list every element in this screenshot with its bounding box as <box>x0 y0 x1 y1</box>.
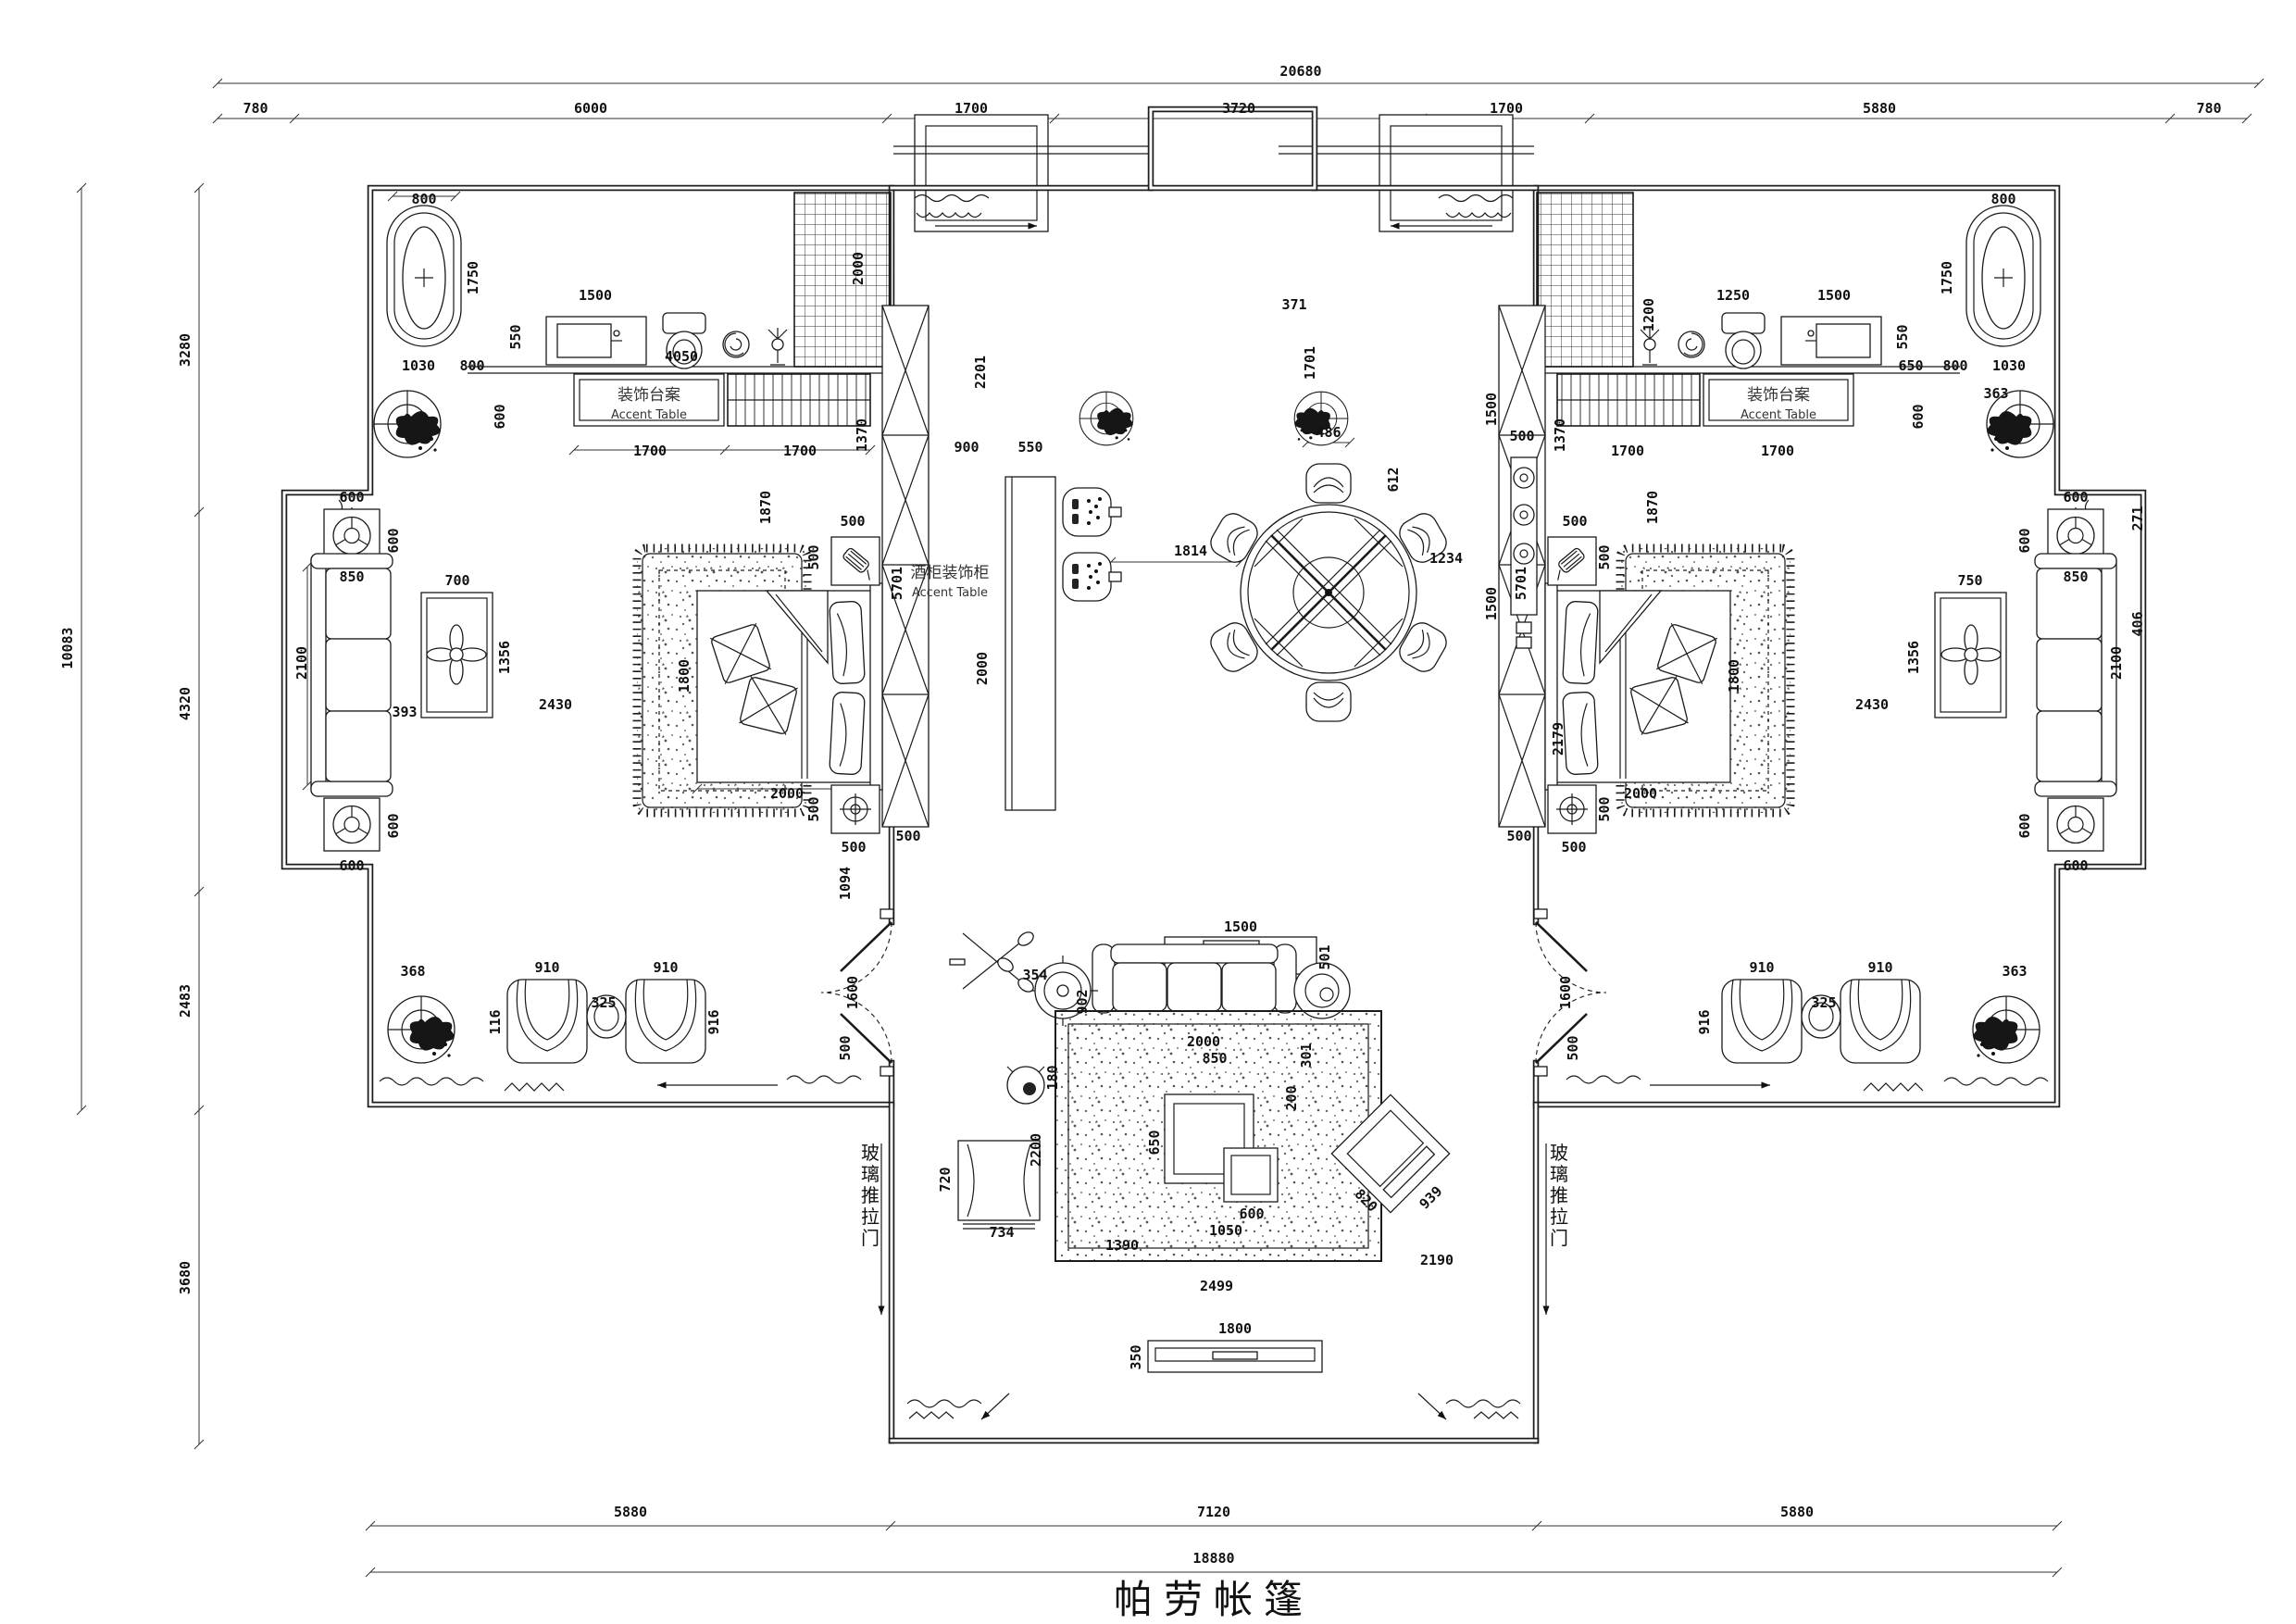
dimension-label: 1050 <box>1209 1222 1242 1239</box>
window-curtain <box>380 1076 861 1091</box>
nightstand <box>831 537 880 585</box>
dimension-label: 5880 <box>1780 1504 1814 1520</box>
dimension-label: 1800 <box>1218 1320 1252 1337</box>
room-label: Accent Table <box>611 408 687 422</box>
slatted-bench <box>728 374 870 426</box>
dimension-label: 4050 <box>665 348 698 365</box>
dimension-label: 2000 <box>850 252 867 285</box>
vanity-sink <box>546 317 646 365</box>
dimension-label: 1030 <box>1992 357 2026 374</box>
dimension-label: 550 <box>1017 439 1042 456</box>
dimension-label: 2190 <box>1420 1252 1454 1268</box>
terrace-curtain <box>907 1393 1009 1419</box>
dimension-label: 20680 <box>1279 63 1321 80</box>
dimension-label: 500 <box>837 1035 854 1060</box>
dimension-label: 325 <box>1811 994 1836 1011</box>
dimension-label: 2000 <box>1187 1033 1220 1050</box>
dimension-label: 116 <box>487 1009 504 1034</box>
dimension-label: 486 <box>1316 424 1341 441</box>
dimension-label: 1500 <box>1817 287 1851 304</box>
dimension-label: 550 <box>1894 324 1911 349</box>
dimension-label: 600 <box>2063 489 2088 506</box>
dimension-label: 780 <box>243 100 268 117</box>
dimension-label: 600 <box>339 489 364 506</box>
dimension-label: 600 <box>339 857 364 874</box>
drawing-title: 帕劳帐篷 <box>1114 1577 1314 1622</box>
dimension-label: 2430 <box>539 696 572 713</box>
dimension-label: 500 <box>1565 1035 1581 1060</box>
dimension-label: 1500 <box>1483 587 1500 620</box>
dimension-label: 1750 <box>465 261 481 294</box>
dimension-label: 600 <box>492 404 508 429</box>
dimension-label: 600 <box>385 528 402 553</box>
dimension-label: 910 <box>653 959 678 976</box>
room-label: 玻璃推拉门 <box>861 1142 880 1249</box>
table-lamp <box>768 328 787 365</box>
dimension-label: 650 <box>1146 1130 1163 1155</box>
dimension-label: 916 <box>1696 1009 1713 1034</box>
dimension-label: 1701 <box>1302 346 1318 380</box>
dimension-label: 406 <box>2129 611 2146 636</box>
dimension-label: 180 <box>1044 1065 1061 1090</box>
bar-counter <box>1005 477 1055 810</box>
dimension-label: 500 <box>1596 796 1613 821</box>
dimension-label: 2100 <box>2108 646 2125 680</box>
dimension-label: 902 <box>1074 989 1091 1014</box>
dimension-label: 10083 <box>59 627 76 668</box>
room-label: 玻璃推拉门 <box>1550 1142 1568 1249</box>
dimension-label: 5701 <box>889 567 905 600</box>
dimension-label: 200 <box>1283 1085 1300 1110</box>
dimension-label: 2179 <box>1550 722 1566 756</box>
dimension-label: 500 <box>1561 839 1586 856</box>
dimension-label: 1200 <box>1641 298 1657 331</box>
dimension-label: 1370 <box>1552 418 1568 452</box>
dimension-label: 1700 <box>1761 443 1794 459</box>
bay-sofa <box>311 554 393 796</box>
dimension-label: 325 <box>591 994 616 1011</box>
dimension-label: 1800 <box>1726 659 1742 693</box>
dimension-label: 600 <box>1239 1206 1264 1222</box>
dimension-label: 1600 <box>844 976 861 1009</box>
dimension-label: 4320 <box>177 687 193 720</box>
dimension-label: 5880 <box>614 1504 647 1520</box>
dimension-label: 500 <box>1596 544 1613 569</box>
dimension-label: 1700 <box>633 443 667 459</box>
room-label: 装饰台案 <box>1747 386 1810 405</box>
dimension-label: 2430 <box>1855 696 1889 713</box>
dimension-label: 850 <box>1202 1050 1227 1067</box>
living-sofa <box>1092 944 1296 1013</box>
dimension-label: 650 <box>1898 357 1923 374</box>
dimension-label: 2000 <box>770 785 804 802</box>
dimension-label: 5701 <box>1513 567 1529 600</box>
dimension-label: 939 <box>1416 1183 1446 1213</box>
dimension-label: 700 <box>444 572 469 589</box>
dimension-label: 1700 <box>1611 443 1644 459</box>
arc-lamp <box>950 930 1036 994</box>
dimension-label: 1500 <box>579 287 612 304</box>
dimension-label: 1356 <box>496 641 513 674</box>
right-suite-mirror <box>1279 115 2143 1441</box>
nightstand <box>831 785 880 833</box>
annotation-text-layer: 帕劳帐篷 20680780600017003720170058807801008… <box>59 63 2222 1622</box>
room-label: 装饰台案 <box>618 386 680 405</box>
dimension-label: 1356 <box>1905 641 1922 674</box>
dimension-label: 1500 <box>1224 918 1257 935</box>
dimension-label: 501 <box>1316 944 1333 969</box>
dimension-label: 900 <box>954 439 979 456</box>
room-label: Accent Table <box>1741 408 1816 422</box>
dimension-label: 371 <box>1281 296 1306 313</box>
dimension-label: 1700 <box>783 443 817 459</box>
dimension-label: 1870 <box>757 491 774 524</box>
coffee-table <box>421 593 493 718</box>
dimension-label: 350 <box>1128 1344 1144 1369</box>
dimension-label: 3680 <box>177 1261 193 1294</box>
room-label: 酒柜装饰柜 <box>911 564 990 582</box>
dimension-label: 1370 <box>854 418 870 452</box>
dimension-label: 780 <box>2196 100 2221 117</box>
bathtub <box>387 206 461 346</box>
dimension-label: 363 <box>1983 385 2008 402</box>
dimension-label: 3720 <box>1222 100 1255 117</box>
dimension-label: 368 <box>400 963 425 980</box>
dimension-label: 600 <box>385 813 402 838</box>
dimension-label: 600 <box>2016 813 2033 838</box>
dimension-label: 800 <box>459 357 484 374</box>
bed <box>697 583 882 790</box>
dimension-label: 1250 <box>1716 287 1750 304</box>
dimension-label: 600 <box>2016 528 2033 553</box>
dimension-label: 2201 <box>972 356 989 389</box>
small-floor-lamp <box>1007 1067 1044 1104</box>
dimension-label: 500 <box>1562 513 1587 530</box>
dimension-label: 612 <box>1385 467 1402 492</box>
dimension-label: 500 <box>841 839 866 856</box>
dimension-label: 5880 <box>1863 100 1896 117</box>
floor-plan-page: 帕劳帐篷 20680780600017003720170058807801008… <box>0 0 2296 1624</box>
dimension-label: 600 <box>1910 404 1927 429</box>
dimension-label: 500 <box>840 513 865 530</box>
dimension-label: 500 <box>1506 828 1531 844</box>
dimension-label: 1700 <box>955 100 988 117</box>
dimension-label: 910 <box>534 959 559 976</box>
shower-area <box>794 193 891 367</box>
terrace-console <box>1148 1341 1322 1372</box>
dimension-label: 2200 <box>1028 1133 1044 1167</box>
roof-panel <box>893 115 1149 231</box>
dimension-label: 500 <box>805 796 822 821</box>
dimension-label: 1750 <box>1939 261 1955 294</box>
dimension-label: 550 <box>507 324 524 349</box>
dimension-label: 363 <box>2002 963 2027 980</box>
dimension-label: 800 <box>1942 357 1967 374</box>
floor-plan-svg: 帕劳帐篷 20680780600017003720170058807801008… <box>0 0 2296 1624</box>
dimension-label: 2499 <box>1200 1278 1233 1294</box>
dimension-label: 1800 <box>676 659 693 693</box>
dimension-label: 850 <box>339 568 364 585</box>
dimension-label: 734 <box>989 1224 1014 1241</box>
dimension-label: 910 <box>1749 959 1774 976</box>
dimension-label: 1814 <box>1174 543 1207 559</box>
dimension-label: 1500 <box>1483 393 1500 426</box>
dining-table <box>1241 505 1416 681</box>
room-label: Accent Table <box>912 586 988 600</box>
dimension-label: 500 <box>1509 428 1534 444</box>
dimension-label: 910 <box>1867 959 1892 976</box>
towel-basket <box>723 331 749 357</box>
dimension-label: 354 <box>1022 967 1047 983</box>
dimension-label: 500 <box>805 544 822 569</box>
dimension-label: 850 <box>2063 568 2088 585</box>
dimension-label: 1700 <box>1490 100 1523 117</box>
dimension-label: 393 <box>392 704 417 720</box>
dimension-label: 500 <box>895 828 920 844</box>
dimension-label: 1870 <box>1644 491 1661 524</box>
dimension-label: 600 <box>2063 857 2088 874</box>
dimension-label: 1030 <box>402 357 435 374</box>
dimension-label: 7120 <box>1197 1504 1230 1520</box>
dimension-label: 6000 <box>574 100 607 117</box>
dimension-label: 301 <box>1298 1043 1315 1068</box>
dimension-label: 916 <box>705 1009 722 1034</box>
dimension-label: 800 <box>1990 191 2015 207</box>
dimension-label: 1234 <box>1429 550 1463 567</box>
dimension-label: 2483 <box>177 984 193 1018</box>
dimension-label: 1600 <box>1557 976 1574 1009</box>
dimension-label: 18880 <box>1192 1550 1234 1567</box>
dimension-label: 800 <box>411 191 436 207</box>
dimension-label: 271 <box>2129 506 2146 531</box>
dimension-label: 2100 <box>293 646 310 680</box>
dimension-label: 2000 <box>974 652 991 685</box>
dimension-label: 1094 <box>837 867 854 900</box>
dimension-label: 1390 <box>1105 1237 1139 1254</box>
dimension-label: 2000 <box>1624 785 1657 802</box>
dimension-label: 3280 <box>177 333 193 367</box>
dimension-label: 720 <box>937 1167 954 1192</box>
dimension-label: 750 <box>1957 572 1982 589</box>
center-section <box>892 109 1537 1441</box>
entry-porch <box>1151 109 1315 188</box>
